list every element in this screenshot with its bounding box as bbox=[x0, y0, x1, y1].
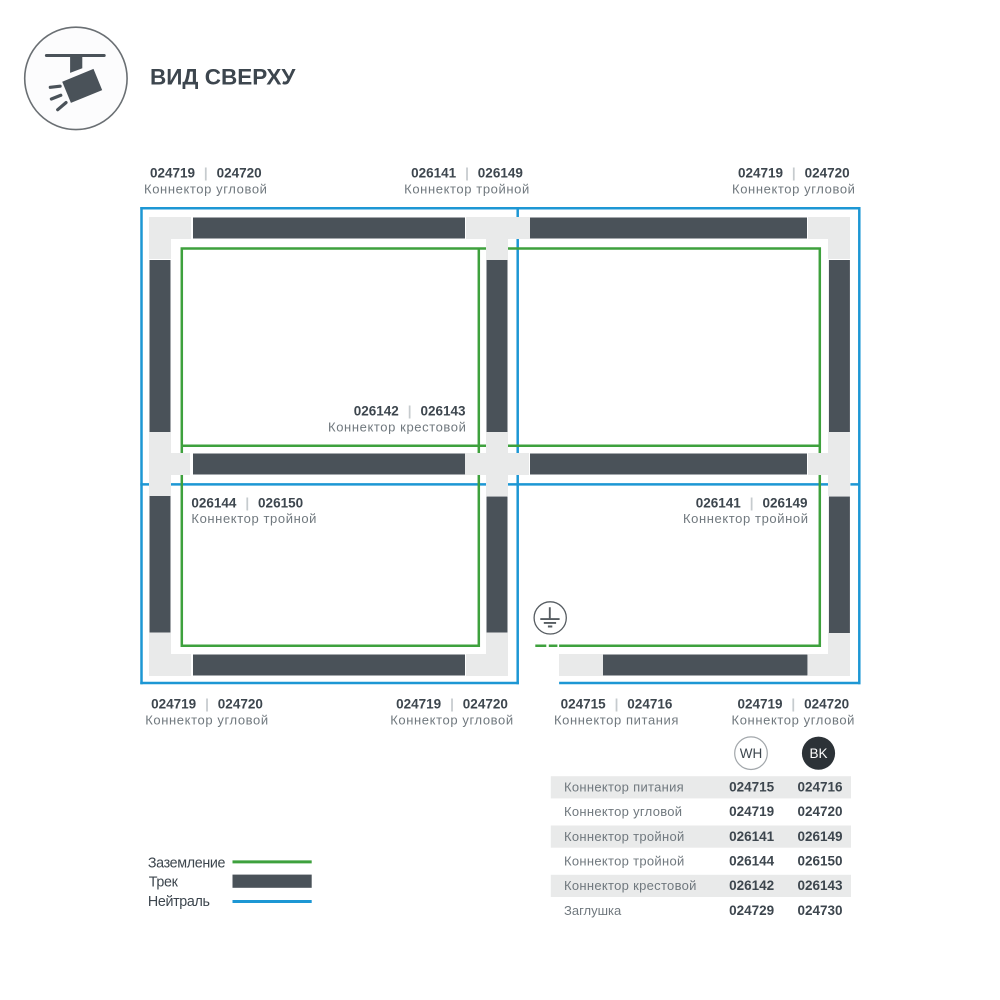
svg-text:024719 | 024720: 024719 | 024720 bbox=[737, 697, 849, 712]
svg-text:024719 | 024720: 024719 | 024720 bbox=[396, 697, 508, 712]
svg-text:026144: 026144 bbox=[729, 854, 775, 869]
svg-text:Заглушка: Заглушка bbox=[564, 903, 622, 918]
svg-text:Нейтраль: Нейтраль bbox=[148, 894, 210, 910]
svg-text:Коннектор угловой: Коннектор угловой bbox=[732, 182, 855, 197]
svg-text:Коннектор крестовой: Коннектор крестовой bbox=[564, 878, 697, 893]
svg-text:Коннектор питания: Коннектор питания bbox=[554, 713, 679, 728]
svg-text:026141: 026141 bbox=[729, 829, 775, 844]
svg-text:026142: 026142 bbox=[729, 878, 774, 893]
svg-text:026150: 026150 bbox=[797, 854, 842, 869]
svg-text:026141 | 026149: 026141 | 026149 bbox=[411, 166, 523, 181]
svg-text:Коннектор угловой: Коннектор угловой bbox=[145, 713, 268, 728]
svg-text:Трек: Трек bbox=[149, 874, 179, 890]
svg-text:Коннектор тройной: Коннектор тройной bbox=[683, 511, 809, 526]
svg-text:ВИД СВЕРХУ: ВИД СВЕРХУ bbox=[150, 64, 296, 89]
svg-text:Коннектор тройной: Коннектор тройной bbox=[191, 511, 317, 526]
svg-text:024716: 024716 bbox=[797, 780, 843, 795]
svg-text:026142 | 026143: 026142 | 026143 bbox=[354, 404, 466, 419]
svg-text:026144 | 026150: 026144 | 026150 bbox=[191, 495, 303, 510]
svg-text:Коннектор угловой: Коннектор угловой bbox=[732, 713, 855, 728]
svg-text:024720: 024720 bbox=[797, 804, 842, 819]
svg-text:Коннектор угловой: Коннектор угловой bbox=[390, 713, 513, 728]
svg-text:Коннектор тройной: Коннектор тройной bbox=[404, 182, 530, 197]
svg-text:024719 | 024720: 024719 | 024720 bbox=[151, 697, 263, 712]
svg-text:026143: 026143 bbox=[797, 878, 843, 893]
svg-text:026141 | 026149: 026141 | 026149 bbox=[696, 495, 808, 510]
svg-text:Коннектор тройной: Коннектор тройной bbox=[564, 854, 685, 869]
svg-text:Коннектор питания: Коннектор питания bbox=[564, 780, 684, 795]
svg-text:024719 | 024720: 024719 | 024720 bbox=[150, 166, 262, 181]
svg-text:Коннектор крестовой: Коннектор крестовой bbox=[328, 419, 466, 434]
svg-text:Коннектор тройной: Коннектор тройной bbox=[564, 829, 685, 844]
svg-text:Коннектор угловой: Коннектор угловой bbox=[144, 182, 267, 197]
svg-text:024719: 024719 bbox=[729, 804, 774, 819]
svg-text:024715: 024715 bbox=[729, 780, 775, 795]
svg-text:026149: 026149 bbox=[797, 829, 842, 844]
svg-text:024730: 024730 bbox=[797, 903, 842, 918]
svg-text:WH: WH bbox=[740, 746, 763, 761]
svg-text:024729: 024729 bbox=[729, 903, 774, 918]
svg-text:BK: BK bbox=[809, 746, 827, 761]
svg-text:024719 | 024720: 024719 | 024720 bbox=[738, 166, 850, 181]
svg-text:Заземление: Заземление bbox=[148, 855, 226, 871]
svg-text:024715 | 024716: 024715 | 024716 bbox=[561, 697, 673, 712]
svg-text:Коннектор угловой: Коннектор угловой bbox=[564, 804, 682, 819]
